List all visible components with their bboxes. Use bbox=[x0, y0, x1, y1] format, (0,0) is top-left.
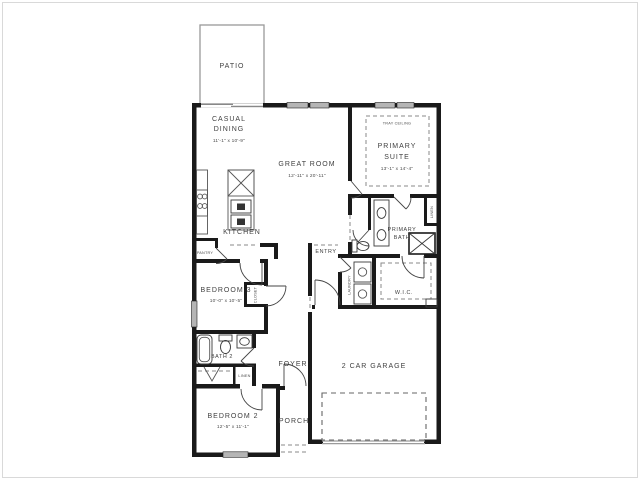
page-border bbox=[3, 3, 638, 478]
labels: PATIO CASUAL DINING 11'-1" x 10'-9" GREA… bbox=[197, 63, 434, 430]
label-great-room: GREAT ROOM bbox=[278, 161, 335, 168]
washer bbox=[354, 262, 371, 282]
label-kitchen: KITCHEN bbox=[223, 229, 261, 236]
garage-door bbox=[322, 441, 425, 444]
dims-primary-suite: 13'-1" x 14'-4" bbox=[381, 166, 414, 172]
dims-great-room: 12'-11" x 20'-11" bbox=[288, 173, 326, 179]
toilet-bowl bbox=[221, 341, 231, 354]
label-primary-bath-2: BATH bbox=[394, 235, 410, 241]
label-linen-primary: LINEN bbox=[430, 206, 434, 218]
vanity-sink bbox=[377, 208, 386, 219]
label-tray-ceiling: TRAY CEILING bbox=[383, 122, 411, 126]
label-closet-bedroom3: CLOSET bbox=[254, 286, 258, 303]
label-casual-dining-1: CASUAL bbox=[212, 116, 246, 123]
laundry-fixtures bbox=[354, 262, 437, 307]
label-primary-suite-1: PRIMARY bbox=[378, 143, 417, 150]
label-porch: PORCH bbox=[279, 418, 309, 425]
label-bedroom3: BEDROOM 3 bbox=[200, 287, 251, 294]
vanity-sink bbox=[377, 230, 386, 241]
floor-plan-page: PATIO CASUAL DINING 11'-1" x 10'-9" GREA… bbox=[0, 0, 640, 480]
label-pantry: PANTRY bbox=[197, 251, 214, 255]
bath2-sink bbox=[240, 338, 250, 346]
label-primary-suite-2: SUITE bbox=[384, 154, 410, 161]
dims-casual-dining: 11'-1" x 10'-9" bbox=[213, 138, 245, 144]
label-foyer: FOYER bbox=[278, 361, 307, 368]
floor-plan-drawing: PATIO CASUAL DINING 11'-1" x 10'-9" GREA… bbox=[0, 0, 640, 480]
dims-bedroom2: 12'-5" x 11'-1" bbox=[217, 424, 249, 430]
closet-chevron bbox=[204, 367, 220, 381]
dims-bedroom3: 10'-0" x 10'-5" bbox=[210, 298, 243, 304]
label-primary-bath-1: PRIMARY bbox=[388, 227, 417, 233]
double-vanity bbox=[374, 200, 389, 246]
label-wic: W.I.C. bbox=[395, 290, 413, 296]
label-linen-hall: LINEN bbox=[238, 374, 250, 378]
toilet-tank bbox=[352, 240, 357, 252]
label-bedroom2: BEDROOM 2 bbox=[207, 413, 258, 420]
label-laundry: LAUNDRY bbox=[348, 275, 352, 295]
kitchen-fixtures bbox=[197, 170, 255, 234]
dryer bbox=[354, 284, 371, 304]
label-entry: ENTRY bbox=[315, 249, 336, 255]
label-garage: 2 CAR GARAGE bbox=[342, 363, 407, 370]
label-patio: PATIO bbox=[220, 63, 245, 70]
label-casual-dining-2: DINING bbox=[214, 126, 245, 133]
garage-interior-outline bbox=[322, 393, 426, 440]
label-bath2: BATH 2 bbox=[211, 354, 233, 360]
